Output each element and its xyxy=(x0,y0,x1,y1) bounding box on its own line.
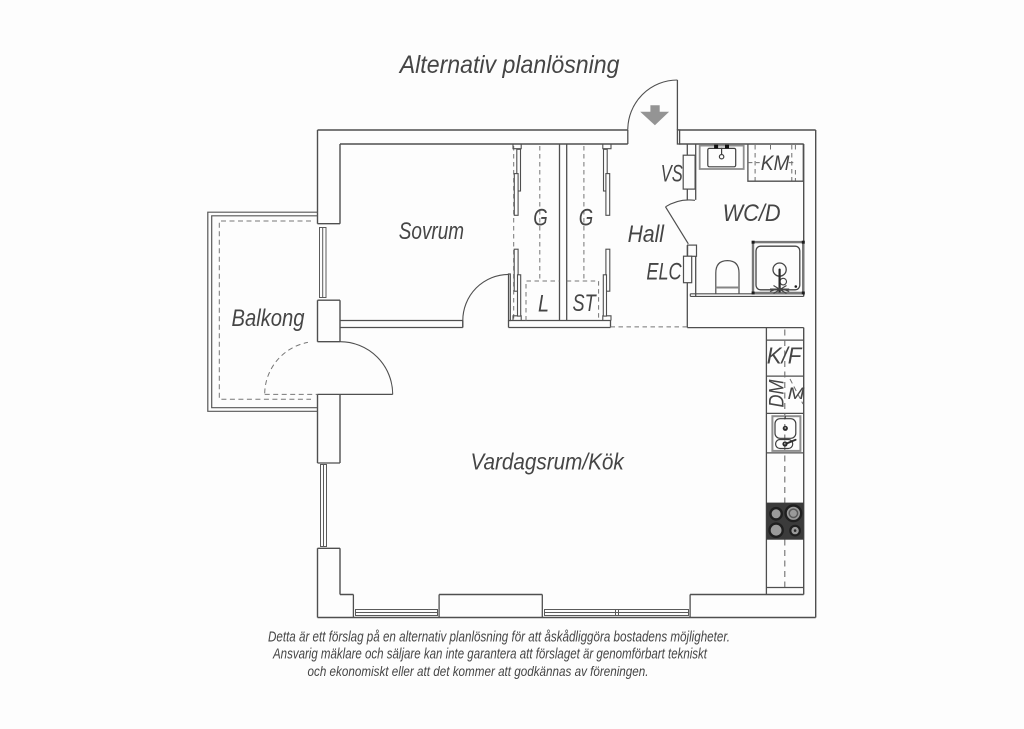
svg-text:Vardagsrum/Kök: Vardagsrum/Kök xyxy=(470,448,625,474)
svg-text:ELC: ELC xyxy=(646,258,682,285)
svg-text:WC/D: WC/D xyxy=(723,200,781,227)
svg-text:L: L xyxy=(538,290,549,317)
svg-text:Sovrum: Sovrum xyxy=(399,218,464,245)
svg-text:VS: VS xyxy=(661,161,683,188)
svg-text:Balkong: Balkong xyxy=(232,305,306,332)
svg-text:M: M xyxy=(788,384,806,403)
svg-text:Alternativ planlösning: Alternativ planlösning xyxy=(398,51,620,79)
svg-text:Ansvarig mäklare och säljare k: Ansvarig mäklare och säljare kan inte ga… xyxy=(272,646,707,663)
svg-text:KM: KM xyxy=(761,152,790,175)
svg-text:G: G xyxy=(579,205,594,232)
svg-text:G: G xyxy=(533,205,548,232)
svg-text:ST: ST xyxy=(573,290,598,317)
svg-text:Detta är ett förslag på en alt: Detta är ett förslag på en alternativ pl… xyxy=(268,628,730,645)
svg-text:K/F: K/F xyxy=(767,342,803,368)
svg-text:DM: DM xyxy=(766,379,789,407)
svg-text:Hall: Hall xyxy=(628,221,665,248)
svg-text:och ekonomiskt eller att det k: och ekonomiskt eller att det kommer att … xyxy=(308,663,649,679)
